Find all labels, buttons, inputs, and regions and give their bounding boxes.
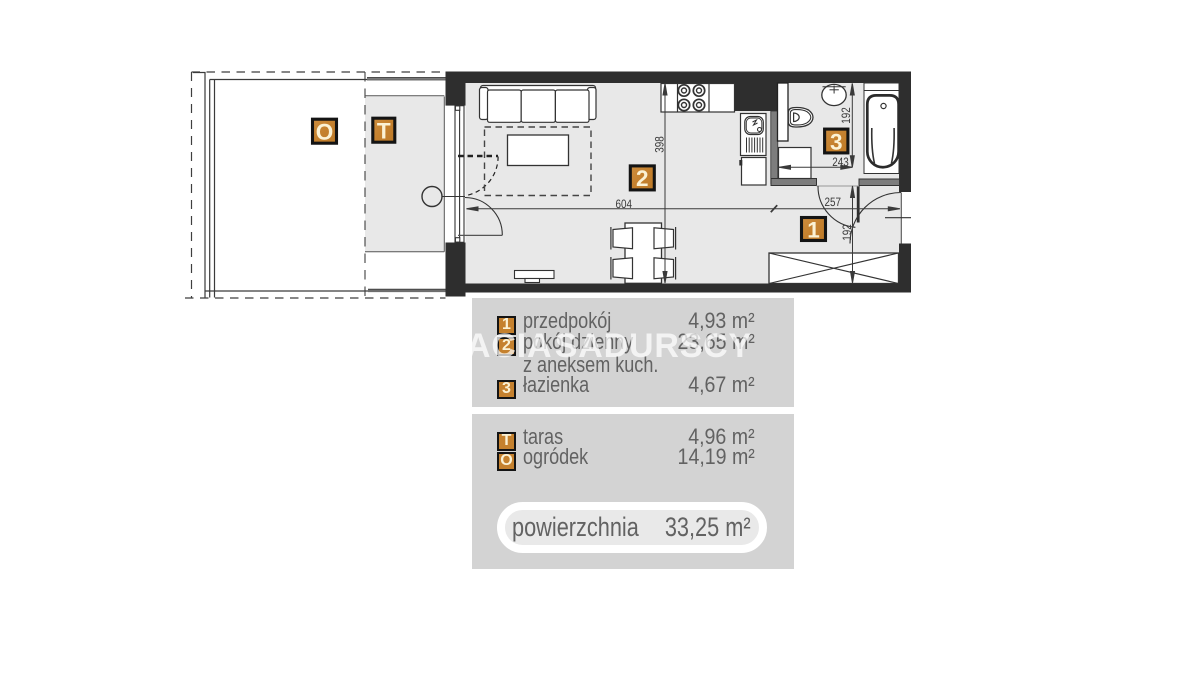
svg-text:O: O — [316, 120, 334, 145]
svg-text:243: 243 — [832, 155, 849, 169]
svg-text:1: 1 — [807, 217, 820, 242]
svg-text:192: 192 — [840, 224, 854, 241]
svg-text:604: 604 — [616, 197, 633, 211]
svg-text:257: 257 — [825, 195, 842, 209]
svg-text:192: 192 — [839, 107, 853, 124]
svg-text:398: 398 — [652, 136, 666, 153]
svg-text:2: 2 — [636, 166, 649, 191]
svg-text:T: T — [377, 119, 391, 144]
svg-text:3: 3 — [830, 129, 843, 154]
